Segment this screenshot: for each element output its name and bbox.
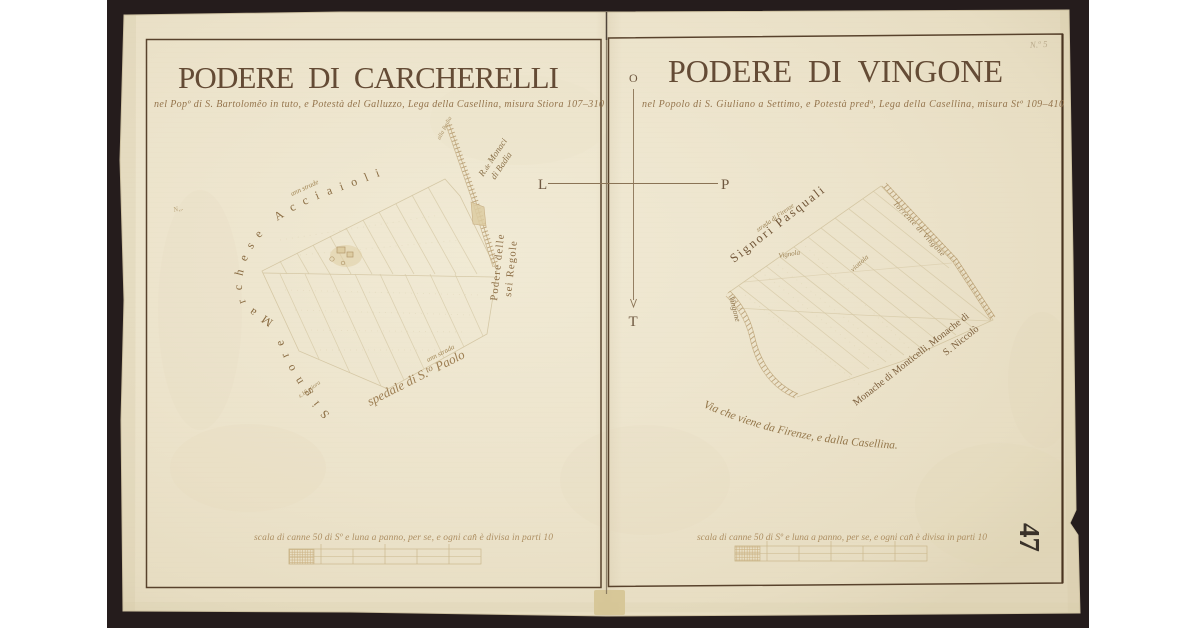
svg-text:PODERE DI VINGONE: PODERE DI VINGONE (668, 53, 1003, 89)
svg-text:scala di canne 50 di Sº e luna: scala di canne 50 di Sº e luna a panno, … (697, 532, 987, 543)
svg-text:O: O (629, 71, 638, 85)
svg-text:scala di canne 50 di Sº e luna: scala di canne 50 di Sº e luna a panno, … (254, 532, 553, 543)
svg-text:nel Popolo di S. Giuliano a Se: nel Popolo di S. Giuliano a Settimo, e P… (642, 99, 1064, 110)
svg-text:PODERE DI CARCHERELLI: PODERE DI CARCHERELLI (178, 60, 559, 95)
svg-text:P: P (721, 177, 729, 193)
svg-text:47: 47 (1013, 523, 1045, 552)
svg-text:N.º 5: N.º 5 (1028, 39, 1048, 50)
svg-text:T: T (629, 314, 638, 330)
svg-text:L: L (538, 177, 547, 193)
svg-text:nel Popº di S. Bartolomêo in t: nel Popº di S. Bartolomêo in tuto, e Pot… (154, 99, 604, 110)
